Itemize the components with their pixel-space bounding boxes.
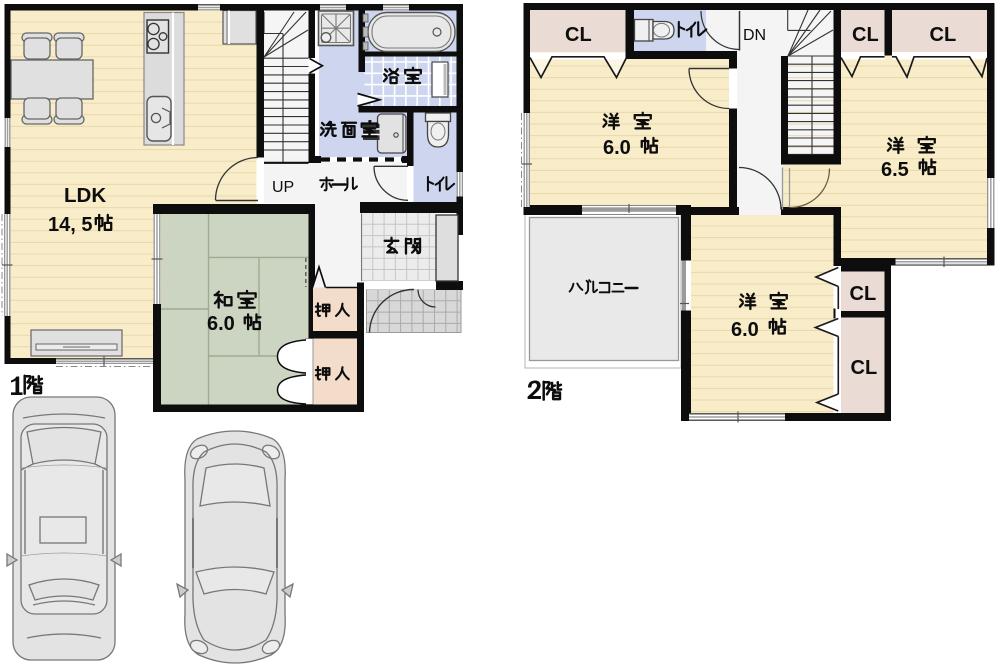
svg-text:DN: DN <box>743 27 766 44</box>
svg-text:CL: CL <box>852 24 879 46</box>
svg-text:6.0: 6.0 <box>731 319 759 341</box>
svg-text:6.0: 6.0 <box>603 137 631 159</box>
svg-text:CL: CL <box>565 24 592 46</box>
svg-text:CL: CL <box>930 24 957 46</box>
svg-text:6.0: 6.0 <box>207 313 235 335</box>
svg-text:CL: CL <box>850 283 877 305</box>
svg-text:14, 5: 14, 5 <box>48 214 92 236</box>
svg-text:CL: CL <box>851 357 878 379</box>
svg-text:LDK: LDK <box>64 184 106 207</box>
svg-text:6.5: 6.5 <box>881 159 909 181</box>
svg-text:UP: UP <box>272 179 294 196</box>
